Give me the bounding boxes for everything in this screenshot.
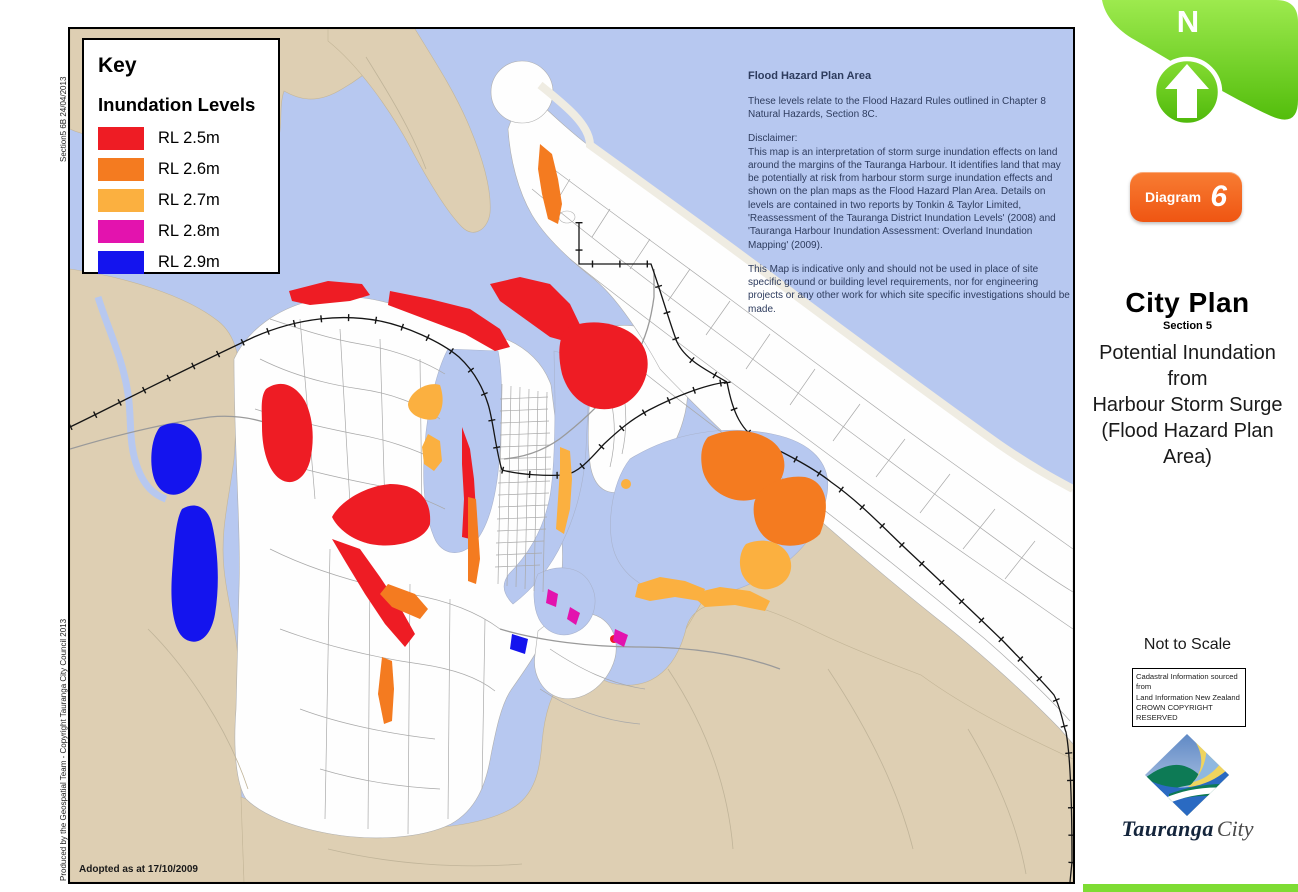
legend-row: RL 2.5m [98,127,278,150]
map-sheet-page: { "page": { "background": "#ffffff", "si… [0,0,1298,892]
cadastral-line: Land Information New Zealand [1136,693,1242,703]
cadastral-line: Cadastral Information sourced from [1136,672,1242,693]
notes-para1: These levels relate to the Flood Hazard … [748,95,1072,122]
adopted-date-label: Adopted as at 17/10/2009 [79,864,198,875]
plan-section: Section 5 [1077,320,1298,332]
cadastral-copyright-box: Cadastral Information sourced from Land … [1132,668,1246,727]
legend-label: RL 2.8m [158,222,220,241]
plan-subtitle-line: (Flood Hazard Plan Area) [1077,418,1298,470]
legend-row: RL 2.7m [98,189,278,212]
legend-swatch-rl29 [98,251,144,274]
notes-disclaimer-label: Disclaimer: [748,132,1072,145]
legend-label: RL 2.5m [158,129,220,148]
margin-note-bottom: Produced by the Geospatial Team - Copyri… [59,619,68,881]
scale-note: Not to Scale [1077,636,1298,654]
plan-subtitle-line: from [1077,366,1298,392]
north-label: N [1168,4,1208,40]
footer-green-strip [1083,884,1298,892]
cadastral-line: CROWN COPYRIGHT RESERVED [1136,703,1242,724]
legend-label: RL 2.9m [158,253,220,272]
diagram-badge-number: 6 [1210,180,1227,214]
legend-subtitle: Inundation Levels [98,94,278,116]
legend-row: RL 2.9m [98,251,278,274]
legend-row: RL 2.6m [98,158,278,181]
map-panel: Key Inundation Levels RL 2.5m RL 2.6m RL… [68,27,1075,884]
legend-label: RL 2.7m [158,191,220,210]
logo-suffix: City [1217,816,1254,841]
notes-block: Flood Hazard Plan Area These levels rela… [748,69,1072,327]
plan-subtitle-line: Potential Inundation [1077,340,1298,366]
notes-para2: This map is an interpretation of storm s… [748,146,1072,252]
plan-title: City Plan [1077,289,1298,317]
tauranga-city-wordmark: TaurangaCity [1077,816,1298,842]
notes-heading: Flood Hazard Plan Area [748,69,1072,84]
legend-box: Key Inundation Levels RL 2.5m RL 2.6m RL… [82,38,280,274]
diagram-badge: Diagram 6 [1130,172,1242,222]
tauranga-city-logo [1139,732,1235,818]
plan-subtitle: Potential Inundation from Harbour Storm … [1077,340,1298,470]
logo-name: Tauranga [1121,816,1213,841]
legend-swatch-rl27 [98,189,144,212]
diagram-badge-label: Diagram [1145,189,1201,205]
legend-title: Key [98,54,278,78]
legend-swatch-rl28 [98,220,144,243]
notes-para3: This Map is indicative only and should n… [748,263,1072,316]
plan-subtitle-line: Harbour Storm Surge [1077,392,1298,418]
legend-row: RL 2.8m [98,220,278,243]
legend-swatch-rl25 [98,127,144,150]
margin-note-top: Section5 6B 24/04/2013 [59,77,68,162]
legend-swatch-rl26 [98,158,144,181]
legend-label: RL 2.6m [158,160,220,179]
title-block: City Plan Section 5 Potential Inundation… [1077,289,1298,470]
